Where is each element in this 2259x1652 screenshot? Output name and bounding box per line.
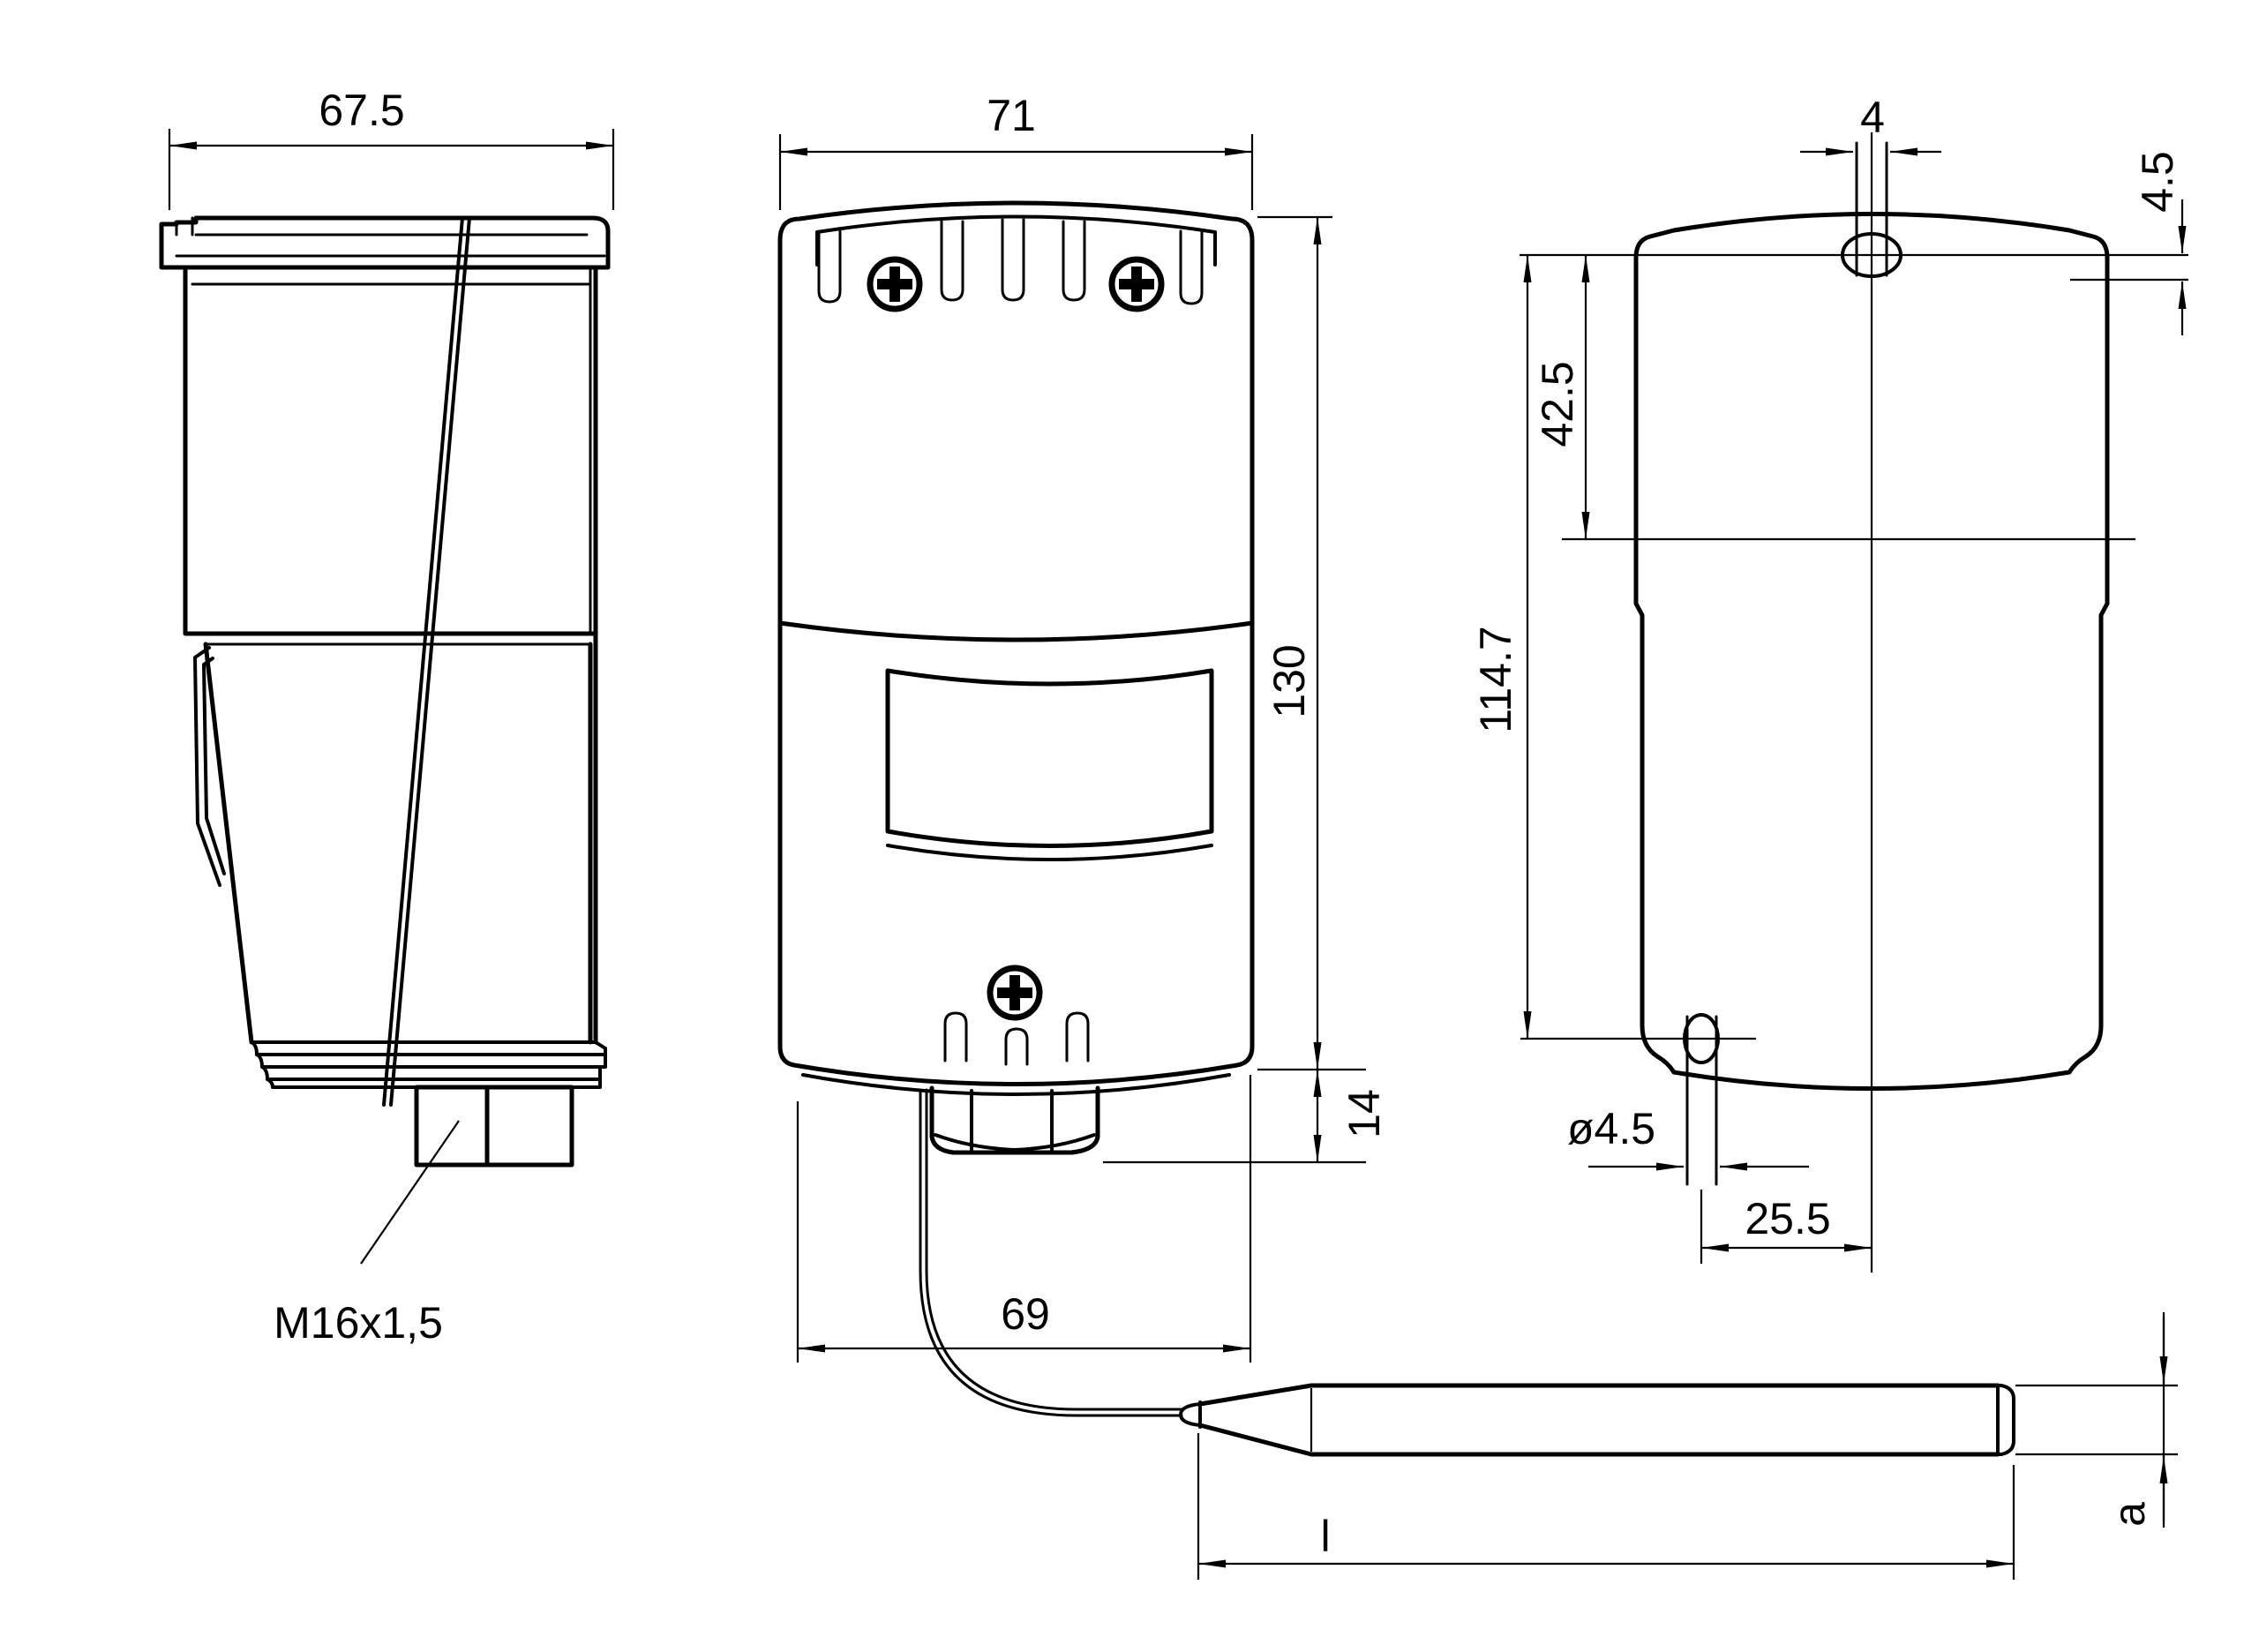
rear-mounting-hole [1685, 1015, 1718, 1184]
dim-hole-off-center: 25.5 [1701, 1190, 1872, 1264]
dim-side-width-ext [169, 129, 613, 210]
side-base-plates [251, 1042, 605, 1087]
side-cap-lines [176, 218, 604, 256]
dim-hole-offset: 42.5 [1533, 255, 1586, 539]
front-cap-bottom-arc [780, 623, 1252, 640]
side-cable-gland [417, 1087, 572, 1165]
dim-front-width: 71 [780, 91, 1252, 210]
gland-label: M16x1,5 [274, 1298, 443, 1348]
dim-side-width: 67.5 [169, 86, 613, 210]
front-vent-slots-bottom [945, 1013, 1088, 1064]
dim-hole-pitch: 114.7 [1471, 255, 1756, 1039]
dim-side-width-label: 67.5 [319, 86, 404, 135]
front-view: 71 130 14 69 l [780, 91, 2178, 1580]
technical-drawing: M16x1,5 67.5 [0, 0, 2259, 1652]
dim-probe-dia-label: a [2105, 1502, 2154, 1527]
side-cap-outline [161, 218, 608, 267]
dim-step-depth-label: 4.5 [2133, 151, 2182, 213]
sensor-probe [1181, 1385, 2014, 1454]
dim-probe-dia: a [2015, 1312, 2178, 1528]
dim-front-width-label: 71 [987, 91, 1036, 140]
front-window [888, 671, 1212, 846]
phillips-screw-top-right-icon [1112, 259, 1161, 309]
phillips-screw-bottom-icon [990, 968, 1039, 1017]
dim-base-width: 69 [798, 1075, 1250, 1363]
phillips-screw-top-left-icon [870, 259, 919, 309]
side-view: M16x1,5 67.5 [161, 86, 613, 1348]
dim-hole-off-center-label: 25.5 [1745, 1194, 1830, 1243]
front-body-outline [780, 203, 1252, 1085]
dim-nut-height: 14 [1103, 1070, 1389, 1162]
drawing-canvas: M16x1,5 67.5 [0, 0, 2259, 1652]
dim-slot-width-label: 4 [1860, 93, 1885, 142]
front-cap-inner-arc [817, 217, 1215, 266]
dim-base-width-label: 69 [1001, 1289, 1050, 1339]
gland-leader-line [361, 1121, 459, 1264]
dim-step-depth: 4.5 [2070, 151, 2188, 335]
dim-probe-length-label: l [1320, 1512, 1330, 1561]
gland-nut [932, 1088, 1098, 1153]
dim-hole-dia-label: ø4.5 [1567, 1104, 1655, 1153]
dim-front-height: 130 [1257, 217, 1366, 1070]
dim-front-height-label: 130 [1265, 644, 1314, 717]
dim-hole-offset-label: 42.5 [1533, 361, 1582, 447]
dim-hole-pitch-label: 114.7 [1471, 626, 1520, 732]
side-cover-inner [192, 269, 590, 644]
dim-nut-height-label: 14 [1340, 1089, 1389, 1138]
side-rod [384, 218, 469, 1105]
side-cover-box [185, 267, 596, 634]
rear-view: 4 4.5 42.5 114.7 ø4.5 25. [1471, 93, 2188, 1273]
